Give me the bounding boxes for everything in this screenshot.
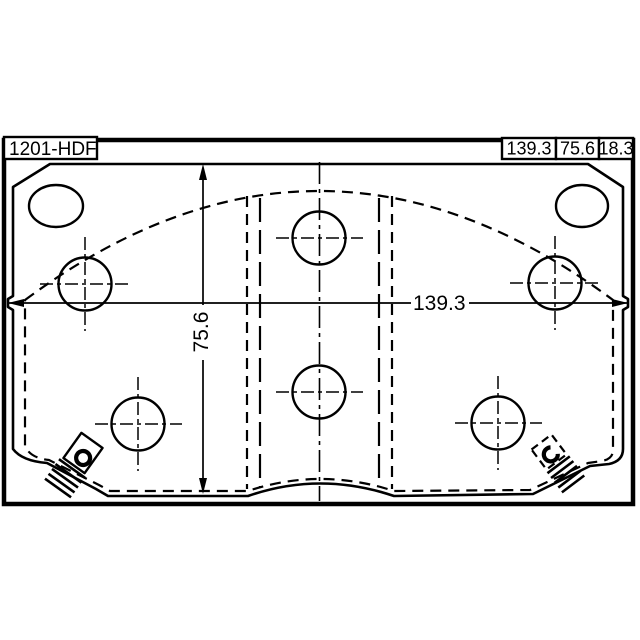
spec-height-value: 75.6 — [560, 139, 595, 159]
part-number-text: 1201-HDF — [9, 139, 97, 160]
guide-hole-oval-left — [29, 185, 83, 227]
spec-box-width: 139.3 — [502, 138, 556, 159]
width-dimension-label: 139.3 — [413, 292, 466, 315]
crosshair-upper-left — [40, 237, 130, 331]
spec-box-thickness: 18.3 — [598, 138, 633, 159]
part-number-box: 1201-HDF — [4, 137, 97, 160]
technical-drawing: 139.3 75.6 1201-H — [0, 0, 640, 640]
spec-box-height: 75.6 — [556, 138, 599, 159]
wear-indicator-right — [530, 434, 584, 493]
width-dimension-arrow-left — [8, 299, 24, 307]
brake-pad-drawing-page: 139.3 75.6 1201-H — [0, 0, 640, 640]
crosshair-lower-left — [95, 377, 182, 471]
height-dimension: 75.6 — [190, 164, 213, 494]
crosshair-upper-right — [510, 236, 600, 330]
width-dimension: 139.3 — [8, 292, 628, 315]
crosshair-lower-right — [455, 376, 542, 470]
height-dimension-arrow-up — [199, 164, 207, 180]
guide-hole-oval-right — [556, 185, 608, 227]
height-dimension-label: 75.6 — [190, 312, 213, 353]
spec-width-value: 139.3 — [506, 139, 551, 159]
spec-thickness-value: 18.3 — [598, 139, 633, 159]
width-dimension-arrow-right — [612, 299, 628, 307]
wear-indicator-left — [45, 431, 105, 497]
